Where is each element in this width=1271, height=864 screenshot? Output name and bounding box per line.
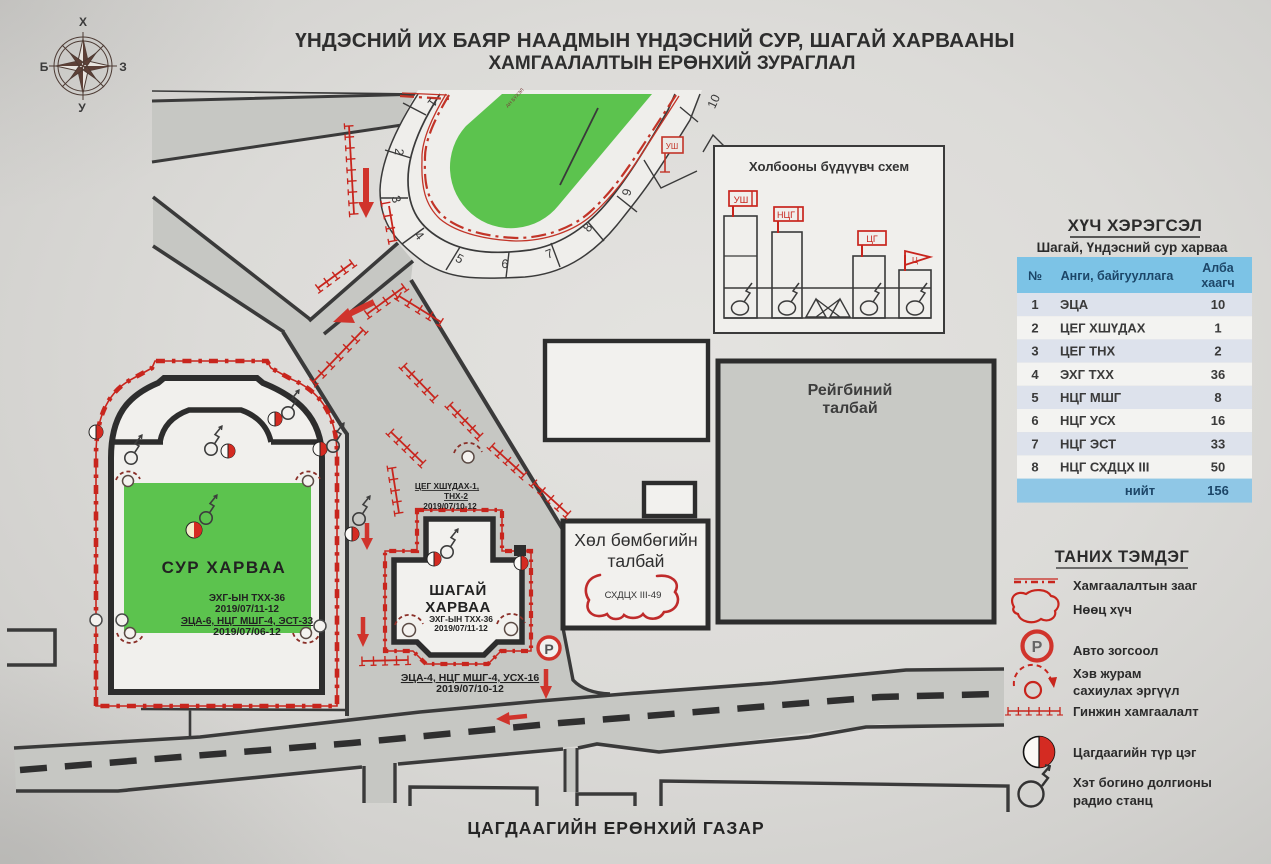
svg-text:8: 8 — [1214, 390, 1221, 405]
svg-text:СХДЦХ III-49: СХДЦХ III-49 — [605, 590, 662, 601]
svg-text:З: З — [119, 60, 127, 74]
svg-text:P: P — [544, 641, 553, 657]
svg-text:Рейгбиний: Рейгбиний — [808, 382, 893, 399]
svg-text:НЦГ УСХ: НЦГ УСХ — [1060, 413, 1116, 428]
svg-text:Хамгаалалтын зааг: Хамгаалалтын зааг — [1073, 578, 1198, 593]
svg-text:2019/07/11-12: 2019/07/11-12 — [434, 623, 488, 633]
svg-text:2: 2 — [1031, 320, 1038, 335]
svg-text:3: 3 — [1031, 344, 1038, 359]
svg-text:ЦЕГ ХШҮДАХ: ЦЕГ ХШҮДАХ — [1060, 320, 1146, 335]
svg-text:4: 4 — [1031, 367, 1039, 382]
svg-text:156: 156 — [1207, 483, 1229, 498]
svg-text:7: 7 — [1031, 436, 1038, 451]
svg-text:ТНХ-2: ТНХ-2 — [444, 491, 468, 501]
svg-text:талбай: талбай — [608, 551, 665, 571]
svg-text:У: У — [78, 101, 86, 115]
svg-text:6: 6 — [1031, 413, 1038, 428]
svg-text:ЦЕГ ТНХ: ЦЕГ ТНХ — [1060, 344, 1115, 359]
svg-text:ЦЕГ ХШҮДАХ-1,: ЦЕГ ХШҮДАХ-1, — [415, 481, 479, 491]
svg-text:Нөөц хүч: Нөөц хүч — [1073, 602, 1132, 617]
svg-text:нийт: нийт — [1125, 483, 1155, 498]
svg-text:Анги, байгууллага: Анги, байгууллага — [1061, 269, 1175, 283]
svg-text:ҮНДЭСНИЙ ИХ БАЯР НААДМЫН ҮНДЭС: ҮНДЭСНИЙ ИХ БАЯР НААДМЫН ҮНДЭСНИЙ СУР, Ш… — [295, 28, 1014, 52]
svg-text:Шагай, Үндэсний сур харваа: Шагай, Үндэсний сур харваа — [1037, 240, 1228, 255]
svg-text:Хэв журам: Хэв журам — [1073, 666, 1142, 681]
svg-text:Авто зогсоол: Авто зогсоол — [1073, 643, 1158, 658]
svg-text:ХАМГААЛАЛТЫН ЕРӨНХИЙ ЗУРАГЛАЛ: ХАМГААЛАЛТЫН ЕРӨНХИЙ ЗУРАГЛАЛ — [488, 52, 855, 74]
svg-text:2019/07/11-12: 2019/07/11-12 — [215, 604, 279, 615]
svg-text:ХҮЧ ХЭРЭГСЭЛ: ХҮЧ ХЭРЭГСЭЛ — [1068, 216, 1203, 235]
svg-text:ШАГАЙ: ШАГАЙ — [429, 581, 487, 599]
svg-text:10: 10 — [705, 92, 724, 111]
svg-text:5: 5 — [1031, 390, 1038, 405]
svg-text:ЦГ: ЦГ — [866, 234, 878, 244]
svg-text:Ц: Ц — [912, 256, 918, 265]
svg-text:10: 10 — [1211, 297, 1225, 312]
svg-text:УШ: УШ — [666, 142, 678, 151]
svg-text:Хөл бөмбөгийн: Хөл бөмбөгийн — [574, 530, 697, 550]
svg-text:33: 33 — [1211, 436, 1225, 451]
svg-text:Х: Х — [79, 15, 87, 29]
svg-text:радио станц: радио станц — [1073, 793, 1153, 808]
svg-text:1: 1 — [1031, 297, 1038, 312]
svg-text:ЭХГ ТХХ: ЭХГ ТХХ — [1060, 367, 1114, 382]
svg-text:талбай: талбай — [822, 400, 877, 417]
svg-text:Гинжин хамгаалалт: Гинжин хамгаалалт — [1073, 704, 1199, 719]
svg-text:хаагч: хаагч — [1201, 276, 1234, 290]
svg-text:Алба: Алба — [1202, 261, 1235, 275]
svg-text:НЦГ МШГ: НЦГ МШГ — [1060, 390, 1122, 405]
svg-text:2: 2 — [1214, 344, 1221, 359]
svg-text:НЦГ СХДЦХ III: НЦГ СХДЦХ III — [1060, 460, 1149, 475]
svg-text:ТАНИХ ТЭМДЭГ: ТАНИХ ТЭМДЭГ — [1055, 548, 1190, 566]
svg-text:УШ: УШ — [734, 195, 749, 206]
svg-text:Цагдаагийн түр цэг: Цагдаагийн түр цэг — [1073, 745, 1197, 760]
svg-text:сахиулах эргүүл: сахиулах эргүүл — [1073, 683, 1179, 698]
svg-text:50: 50 — [1211, 460, 1225, 475]
svg-text:16: 16 — [1211, 413, 1225, 428]
svg-text:2019/07/06-12: 2019/07/06-12 — [213, 626, 281, 638]
svg-text:Хэт богино долгионы: Хэт богино долгионы — [1073, 775, 1212, 790]
svg-text:Холбооны бүдүүвч схем: Холбооны бүдүүвч схем — [749, 159, 909, 174]
svg-text:36: 36 — [1211, 367, 1225, 382]
svg-text:2019/07/10-12: 2019/07/10-12 — [423, 501, 477, 511]
svg-text:НЦГ ЭСТ: НЦГ ЭСТ — [1060, 436, 1116, 451]
svg-text:Б: Б — [40, 60, 49, 74]
svg-text:ЭХГ-ЫН ТХХ-36: ЭХГ-ЫН ТХХ-36 — [209, 593, 286, 604]
svg-text:ЭЦА: ЭЦА — [1060, 297, 1089, 312]
svg-text:№: № — [1028, 269, 1042, 283]
svg-text:ЦАГДААГИЙН ЕРӨНХИЙ ГАЗАР: ЦАГДААГИЙН ЕРӨНХИЙ ГАЗАР — [467, 817, 764, 838]
svg-text:НЦГ: НЦГ — [777, 210, 795, 220]
svg-text:2019/07/10-12: 2019/07/10-12 — [436, 683, 504, 695]
svg-text:P: P — [1032, 639, 1043, 656]
svg-text:СУР ХАРВАА: СУР ХАРВАА — [162, 558, 287, 577]
svg-text:8: 8 — [1031, 460, 1038, 475]
svg-text:6: 6 — [501, 257, 509, 271]
svg-text:1: 1 — [1214, 320, 1221, 335]
